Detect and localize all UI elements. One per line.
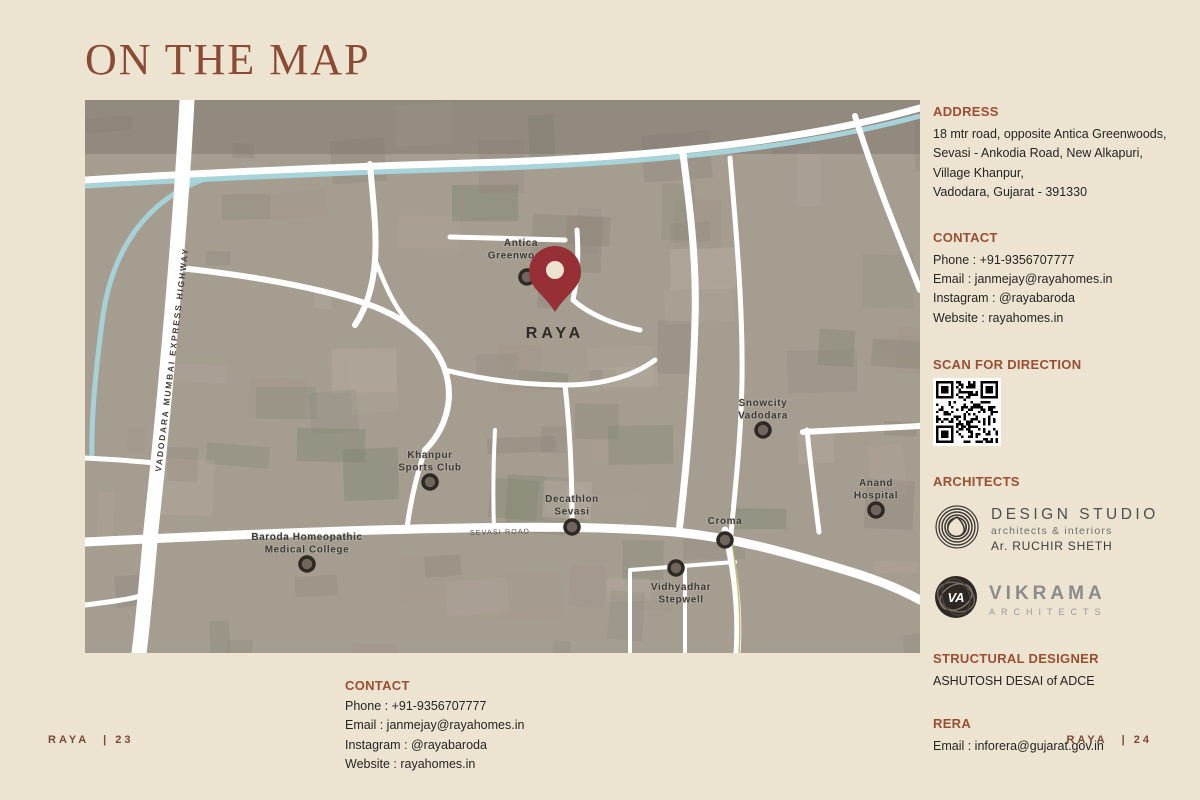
text-line: Website : rayahomes.in [933, 309, 1173, 328]
text-line: Vadodara, Gujarat - 391330 [933, 183, 1173, 202]
poi-dot [756, 423, 770, 437]
text-line: 18 mtr road, opposite Antica Greenwoods, [933, 125, 1173, 144]
poi-label: Antica [504, 238, 538, 249]
location-map: VADODARA MUMBAI EXPRESS HIGHWAY SEVASI R… [85, 100, 920, 653]
architects-section: ARCHITECTS DESIGN S [933, 474, 1173, 625]
text-line: Email : janmejay@rayahomes.in [933, 270, 1173, 289]
brochure-spread: ON THE MAP [0, 0, 1200, 800]
map-field-patch [206, 251, 230, 265]
poi-dot [718, 533, 732, 547]
map-field-patch [657, 320, 694, 374]
map-field-patch [488, 477, 539, 521]
poi-label: Sevasi [554, 507, 589, 518]
map-field-patch [797, 431, 834, 464]
poi-label: Croma [708, 516, 743, 527]
poi-label: Sports Club [398, 463, 461, 474]
poi-label: Hospital [854, 491, 898, 502]
architects-heading: ARCHITECTS [933, 474, 1173, 489]
scan-heading: SCAN FOR DIRECTION [933, 357, 1173, 372]
vikrama-name: VIKRAMA [989, 583, 1107, 605]
text-line: Phone : +91-9356707777 [345, 697, 524, 716]
map-field-patch [608, 425, 674, 465]
map-field-patch [797, 148, 821, 206]
map-field-patch [226, 640, 253, 653]
map-field-patch [552, 640, 571, 653]
footer-right: RAYA| 24 [1066, 734, 1152, 746]
footer-right-page-number: | 24 [1122, 734, 1152, 746]
map-field-patch [256, 387, 316, 420]
text-line: Website : rayahomes.in [345, 755, 524, 774]
contact-lines: Phone : +91-9356707777Email : janmejay@r… [933, 251, 1173, 329]
poi-dot [869, 503, 883, 517]
text-line: Email : janmejay@rayahomes.in [345, 716, 524, 735]
map-field-patch [670, 247, 737, 290]
footer-left-brand: RAYA [48, 734, 89, 746]
poi-dot [300, 557, 314, 571]
footer-left-page-number: | 23 [103, 734, 133, 746]
map-field-patch [97, 492, 115, 536]
map-field-patch [875, 561, 919, 574]
map-field-patch [568, 565, 606, 609]
vikrama-logo: VA VIKRAMA ARCHITECTS [933, 574, 1173, 625]
poi-label: Decathlon [545, 494, 599, 505]
contact-section: CONTACT Phone : +91-9356707777Email : ja… [933, 230, 1173, 329]
scan-section: SCAN FOR DIRECTION [933, 357, 1173, 446]
map-field-patch [787, 349, 857, 393]
poi-label: Baroda Homeopathic [251, 532, 362, 543]
vikrama-subtitle: ARCHITECTS [989, 607, 1107, 617]
poi-dot [423, 475, 437, 489]
design-studio-icon [933, 503, 981, 556]
map-field-patch [540, 426, 570, 454]
map-field-patch [445, 578, 509, 616]
map-field-patch [127, 428, 146, 453]
design-studio-person: Ar. RUCHIR SHETH [991, 539, 1159, 553]
text-line: Phone : +91-9356707777 [933, 251, 1173, 270]
map-field-patch [871, 338, 920, 369]
map-field-patch [397, 213, 460, 251]
bottom-contact-lines: Phone : +91-9356707777Email : janmejay@r… [345, 697, 524, 775]
text-line: Village Khanpur, [933, 164, 1173, 183]
design-studio-logo: DESIGN STUDIO architects & interiors Ar.… [933, 503, 1173, 556]
bottom-contact-section: CONTACT Phone : +91-9356707777Email : ja… [345, 678, 524, 775]
poi-label: Khanpur [407, 450, 452, 461]
footer-right-brand: RAYA [1066, 734, 1107, 746]
contact-heading: CONTACT [933, 230, 1173, 245]
map-field-patch [664, 286, 735, 326]
design-studio-name: DESIGN STUDIO [991, 506, 1159, 524]
footer-left: RAYA| 23 [48, 734, 134, 746]
map-field-patch [222, 194, 271, 220]
map-field-patch [260, 266, 321, 320]
vikrama-icon: VA [933, 574, 979, 625]
poi-dot [669, 561, 683, 575]
address-heading: ADDRESS [933, 104, 1173, 119]
structural-heading: STRUCTURAL DESIGNER [933, 651, 1173, 666]
qr-code [933, 378, 1001, 446]
map-field-patch [424, 554, 462, 578]
poi-label: Anand [859, 478, 893, 489]
text-line: Instagram : @rayabaroda [345, 736, 524, 755]
map-field-patch [351, 643, 397, 653]
structural-designer-section: STRUCTURAL DESIGNER ASHUTOSH DESAI of AD… [933, 651, 1173, 691]
poi-label: Vadodara [738, 411, 788, 422]
text-line: Sevasi - Ankodia Road, New Alkapuri, [933, 144, 1173, 163]
map-image: VADODARA MUMBAI EXPRESS HIGHWAY SEVASI R… [85, 100, 920, 653]
text-line: Instagram : @rayabaroda [933, 289, 1173, 308]
bottom-contact-heading: CONTACT [345, 678, 524, 693]
poi-label: Vidhyadhar [651, 582, 711, 593]
address-lines: 18 mtr road, opposite Antica Greenwoods,… [933, 125, 1173, 203]
poi-label: Snowcity [739, 398, 788, 409]
poi-dot [565, 520, 579, 534]
map-field-patch [602, 367, 658, 388]
vikrama-monogram: VA [947, 590, 964, 605]
raya-pin-label: RAYA [526, 325, 584, 342]
info-sidebar: ADDRESS 18 mtr road, opposite Antica Gre… [933, 104, 1173, 756]
address-section: ADDRESS 18 mtr road, opposite Antica Gre… [933, 104, 1173, 203]
map-field-patch [295, 575, 338, 598]
map-field-patch [269, 189, 327, 220]
rera-heading: RERA [933, 716, 1173, 731]
map-field-patch [348, 353, 399, 414]
poi-label: Medical College [265, 545, 350, 556]
map-field-patch [167, 447, 198, 482]
page-title: ON THE MAP [85, 34, 371, 85]
poi-label: Stepwell [658, 595, 703, 606]
design-studio-subtitle: architects & interiors [991, 525, 1159, 537]
map-field-patch [297, 428, 366, 463]
structural-value: ASHUTOSH DESAI of ADCE [933, 672, 1173, 691]
